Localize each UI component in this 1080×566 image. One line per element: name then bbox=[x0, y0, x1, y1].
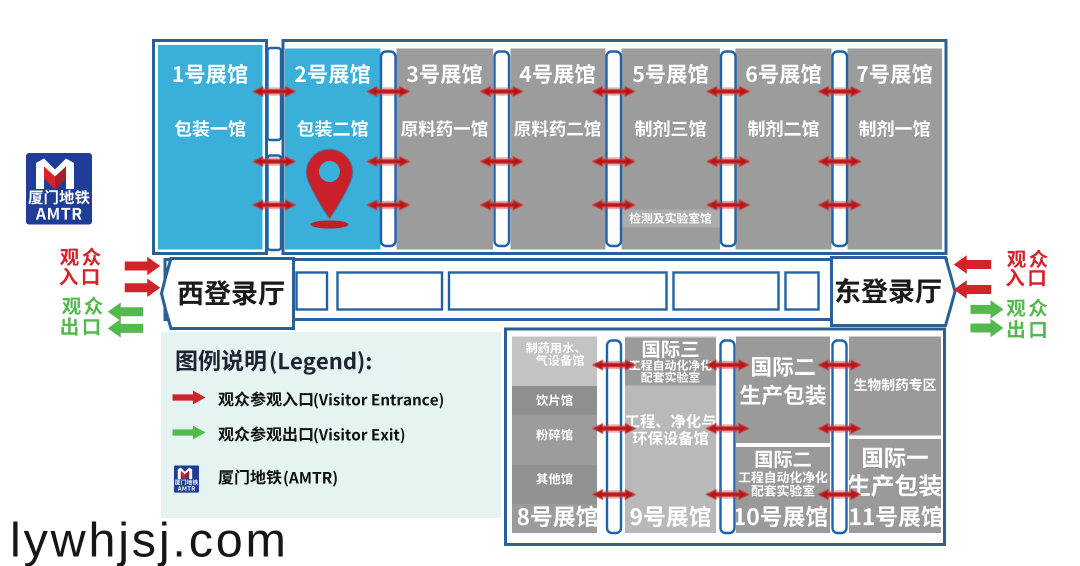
svg-text:lywhjsj.com: lywhjsj.com bbox=[10, 514, 289, 566]
